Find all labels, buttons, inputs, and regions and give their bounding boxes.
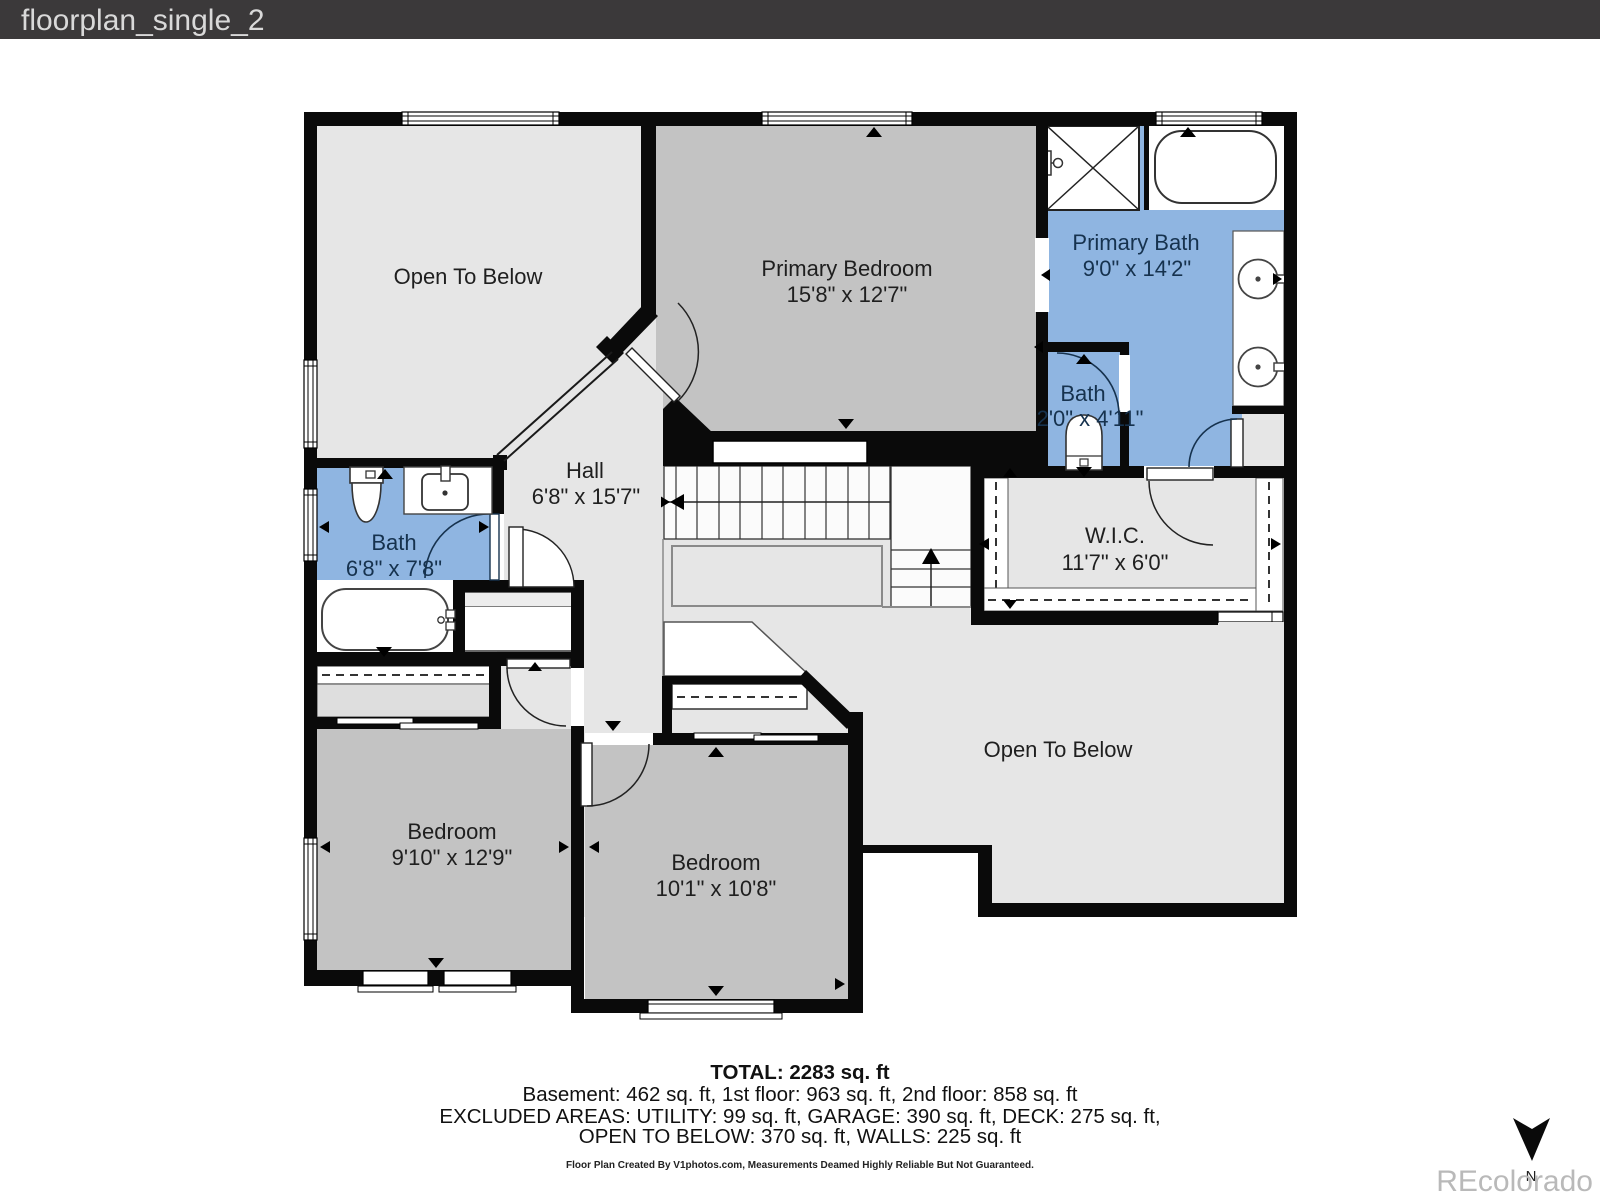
svg-text:REcolorado: REcolorado bbox=[1436, 1165, 1593, 1198]
svg-text:11'7" x 6'0": 11'7" x 6'0" bbox=[1062, 550, 1169, 575]
svg-text:W.I.C.: W.I.C. bbox=[1085, 523, 1145, 548]
svg-text:Basement: 462 sq. ft, 1st floo: Basement: 462 sq. ft, 1st floor: 963 sq.… bbox=[523, 1083, 1078, 1106]
svg-text:Bedroom: Bedroom bbox=[407, 819, 496, 844]
svg-text:Bedroom: Bedroom bbox=[671, 850, 760, 875]
svg-text:6'8" x 7'8": 6'8" x 7'8" bbox=[346, 556, 442, 581]
svg-text:TOTAL: 2283 sq. ft: TOTAL: 2283 sq. ft bbox=[710, 1061, 889, 1084]
svg-text:floorplan_single_2: floorplan_single_2 bbox=[21, 4, 265, 37]
svg-text:9'10" x 12'9": 9'10" x 12'9" bbox=[392, 845, 513, 870]
svg-text:2'0" x 4'11": 2'0" x 4'11" bbox=[1037, 406, 1144, 431]
svg-text:Open To Below: Open To Below bbox=[984, 737, 1133, 762]
svg-text:Bath: Bath bbox=[371, 530, 416, 555]
svg-text:15'8" x 12'7": 15'8" x 12'7" bbox=[787, 282, 908, 307]
svg-text:Primary Bath: Primary Bath bbox=[1072, 230, 1199, 255]
svg-text:Bath: Bath bbox=[1060, 381, 1105, 406]
svg-text:Hall: Hall bbox=[566, 458, 604, 483]
svg-text:Floor Plan Created By V1photos: Floor Plan Created By V1photos.com, Meas… bbox=[566, 1160, 1034, 1171]
svg-text:6'8" x 15'7": 6'8" x 15'7" bbox=[532, 484, 640, 509]
svg-text:Open To Below: Open To Below bbox=[394, 264, 543, 289]
svg-text:9'0" x 14'2": 9'0" x 14'2" bbox=[1083, 256, 1191, 281]
svg-text:Primary Bedroom: Primary Bedroom bbox=[761, 256, 932, 281]
svg-text:10'1" x 10'8": 10'1" x 10'8" bbox=[656, 876, 777, 901]
svg-text:OPEN TO BELOW: 370 sq. ft, WAL: OPEN TO BELOW: 370 sq. ft, WALLS: 225 sq… bbox=[579, 1125, 1022, 1148]
